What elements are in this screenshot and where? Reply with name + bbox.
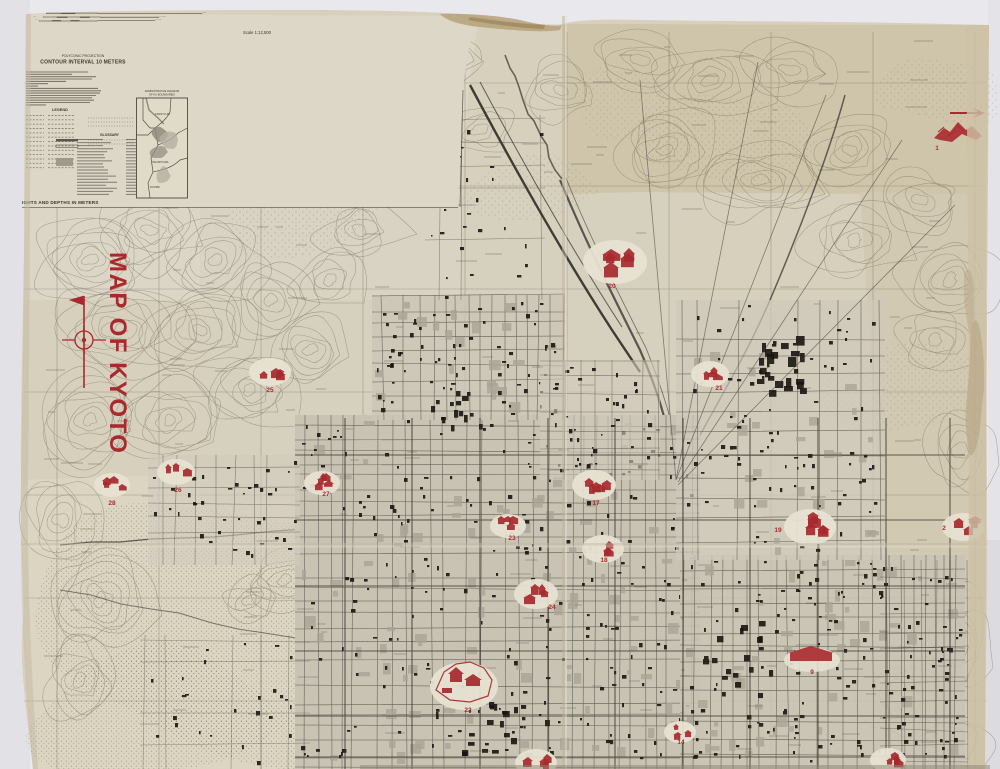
svg-text:HIGASHIYAMA: HIGASHIYAMA: [152, 161, 169, 164]
svg-text:9: 9: [810, 669, 814, 676]
svg-text:26: 26: [174, 487, 182, 494]
svg-text:24: 24: [548, 604, 556, 611]
svg-text:OF KU BOUNDARIES: OF KU BOUNDARIES: [149, 92, 175, 96]
svg-text:LEGEND: LEGEND: [52, 108, 68, 112]
svg-text:IGHTS AND DEPTHS IN METERS: IGHTS AND DEPTHS IN METERS: [22, 200, 99, 205]
svg-text:28: 28: [108, 500, 116, 507]
svg-text:27: 27: [322, 491, 330, 498]
svg-text:Scale 1:12,500: Scale 1:12,500: [243, 30, 272, 35]
svg-text:25: 25: [266, 387, 274, 394]
svg-text:FUSHIMI: FUSHIMI: [150, 186, 160, 189]
svg-text:19: 19: [774, 527, 782, 534]
svg-text:17: 17: [592, 500, 600, 507]
svg-text:GLOSSARY: GLOSSARY: [100, 133, 120, 137]
svg-text:21: 21: [715, 385, 723, 392]
svg-text:CONTOUR INTERVAL 10 METERS: CONTOUR INTERVAL 10 METERS: [40, 60, 126, 66]
svg-text:POLYCONIC PROJECTION: POLYCONIC PROJECTION: [62, 54, 105, 58]
svg-text:22: 22: [464, 707, 472, 714]
svg-text:KAMIKYO-KU: KAMIKYO-KU: [155, 113, 170, 116]
svg-text:20: 20: [608, 283, 616, 290]
svg-text:14: 14: [677, 739, 685, 746]
svg-text:ADMINISTRATIVE DIAGRAM: ADMINISTRATIVE DIAGRAM: [145, 89, 179, 93]
svg-text:MAP OF KYOTO: MAP OF KYOTO: [104, 252, 131, 454]
svg-text:18: 18: [600, 557, 608, 564]
svg-text:23: 23: [508, 535, 516, 542]
svg-text:2: 2: [942, 525, 946, 532]
